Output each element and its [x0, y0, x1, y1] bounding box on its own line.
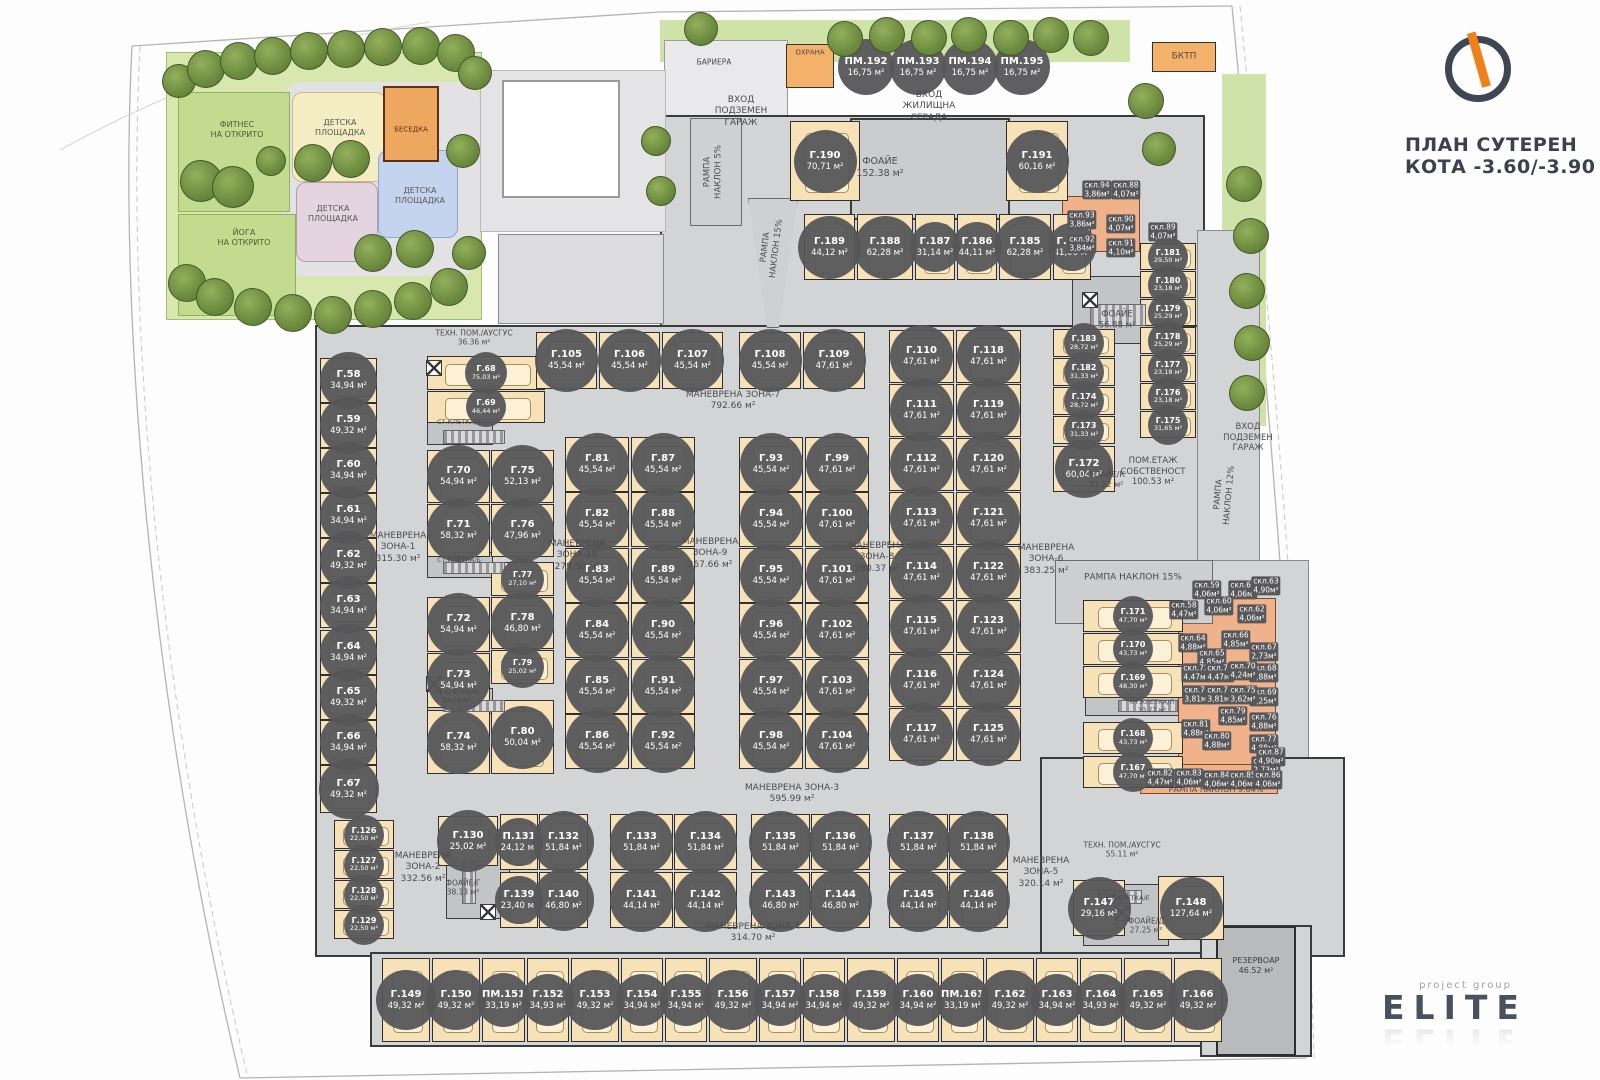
stall-badge: Г.18731,14 м²: [910, 222, 960, 272]
stall-area: 47,70 м²: [1119, 773, 1147, 781]
stall-id: Г.75: [510, 465, 534, 477]
stall-id: Г.130: [452, 830, 483, 842]
tree-icon: [827, 21, 863, 57]
stall-area: 51,84 м²: [623, 843, 660, 853]
stall-id: Г.152: [532, 989, 563, 1001]
plan-label: СТ.КЛЕТКА/Б: [437, 556, 481, 564]
tree-icon: [234, 288, 272, 326]
storage-chip: скл.87 4,90м²: [1256, 747, 1285, 766]
stall-id: Г.191: [1021, 150, 1052, 162]
stall-badge: Г.9245,54 м²: [632, 710, 695, 773]
stall-area: 29,16 м²: [1081, 909, 1118, 919]
tree-icon: [641, 126, 671, 156]
tree-icon: [458, 56, 492, 90]
stall-badge: Г.9947,61 м²: [806, 433, 869, 496]
stall-id: Г.109: [818, 349, 849, 361]
stall-area: 34,94 м²: [762, 1001, 799, 1011]
stall-id: Г.155: [670, 989, 701, 1001]
stall-id: Г.59: [336, 414, 360, 426]
stall-id: Г.157: [764, 989, 795, 1001]
stall-id: Г.150: [440, 989, 471, 1001]
stall-id: Г.188: [869, 236, 900, 248]
stall-area: 33,19 м²: [485, 1001, 522, 1011]
stall-area: 34,93 м²: [1083, 1001, 1120, 1011]
plan-label: МАНЕВРЕНА ЗОНА-6 383.25 м²: [1018, 543, 1075, 577]
stall-badge: Г.8145,54 м²: [566, 433, 629, 496]
stall-badge: Г.10447,61 м²: [806, 710, 869, 773]
stall-area: 45,54 м²: [579, 576, 616, 586]
stall-area: 29,50 м²: [1154, 257, 1182, 265]
stall-id: Г.116: [906, 669, 937, 681]
stall-id: Г.103: [821, 675, 852, 687]
stall-area: 47,96 м²: [504, 531, 541, 541]
tree-icon: [430, 268, 468, 306]
stall-area: 44,12 м²: [811, 248, 848, 258]
stall-id: Г.123: [973, 615, 1004, 627]
tree-icon: [354, 290, 392, 328]
plan-label: ТЕХН. ПОМ./АУСГУС 36.36 м²: [435, 329, 512, 348]
stall-area: 54,94 м²: [440, 477, 477, 487]
stall-area: 22,50 м²: [350, 895, 378, 903]
plan-label: СТ.КЛЕТКА/А: [437, 418, 481, 426]
stall-area: 47,61 м²: [903, 573, 940, 583]
storage-chip: скл.92 3,84м²: [1067, 234, 1096, 253]
stall-id: Г.172: [1068, 458, 1099, 470]
stall-area: 34,94 м²: [806, 1001, 843, 1011]
stall-area: 47,61 м²: [970, 627, 1007, 637]
plan-label: МАНЕВРЕНА ЗОНА-5 320.14 м²: [1013, 856, 1070, 890]
stall-badge: Г.14144,14 м²: [610, 869, 673, 932]
stall-area: 45,54 м²: [753, 465, 790, 475]
stall-id: Г.185: [1009, 236, 1040, 248]
storage-chip: скл.93 3,86м²: [1067, 210, 1096, 229]
tree-icon: [1226, 166, 1262, 202]
stall-area: 47,61 м²: [903, 627, 940, 637]
stall-badge: Г.13651,84 м²: [809, 811, 872, 874]
stall-id: Г.117: [906, 723, 937, 735]
stall-id: Г.163: [1041, 989, 1072, 1001]
tree-icon: [684, 12, 718, 46]
stall-area: 45,54 м²: [753, 631, 790, 641]
stall-id: Г.66: [336, 731, 360, 743]
plan-label: БКТП: [1172, 51, 1197, 62]
stall-badge: Г.13851,84 м²: [947, 811, 1010, 874]
plan-label: РАМПА НАКЛОН 9.64%: [1169, 785, 1264, 795]
stall-area: 34,94 м²: [330, 606, 367, 616]
tree-icon: [402, 27, 440, 65]
stall-area: 54,94 м²: [440, 625, 477, 635]
storage-chip: скл.58 4,47м²: [1169, 600, 1198, 619]
stall-area: 45,54 м²: [579, 742, 616, 752]
stall-area: 27,10 м²: [508, 580, 536, 588]
stall-badge: Г.10347,61 м²: [806, 655, 869, 718]
stall-area: 46,80 м²: [762, 901, 799, 911]
stall-area: 49,32 м²: [388, 1001, 425, 1011]
stall-id: Г.92: [651, 730, 675, 742]
stall-id: Г.80: [510, 726, 534, 738]
stall-area: 23,40 м²: [501, 901, 538, 911]
tree-icon: [396, 230, 434, 268]
stall-area: 47,61 м²: [903, 681, 940, 691]
stall-badge: Г.10645,54 м²: [598, 329, 661, 392]
compass-needle: [1467, 31, 1491, 87]
stall-id: Г.111: [906, 399, 937, 411]
stall-id: Г.86: [585, 730, 609, 742]
stall-area: 58,32 м²: [440, 531, 477, 541]
plan-label: МАНЕВРЕНА ЗОНА-8 280.37 м²: [849, 541, 906, 575]
plan-label: ВХОД ЖИЛИЩНА СГРАДА: [903, 90, 956, 124]
stall-id: Г.149: [390, 989, 421, 1001]
stall-id: Г.189: [814, 236, 845, 248]
storage-chip: скл.66 4,85м²: [1221, 630, 1250, 649]
stall-id: Г.120: [973, 453, 1004, 465]
stall-area: 46,80 м²: [545, 901, 582, 911]
stall-area: 49,32 м²: [1130, 1001, 1167, 1011]
stall-area: 45,54 м²: [645, 465, 682, 475]
storage-chip: скл.90 4,07м²: [1106, 214, 1135, 233]
stall-area: 45,54 м²: [674, 361, 711, 371]
stall-area: 34,93 м²: [530, 1001, 567, 1011]
stall-badge: Г.8445,54 м²: [566, 599, 629, 662]
tree-icon: [274, 294, 312, 332]
plan-label: ДЕТСКА ПЛОЩАДКА: [395, 186, 445, 206]
stall-area: 34,94 м²: [330, 516, 367, 526]
stall-area: 45,54 м²: [579, 465, 616, 475]
stall-id: ПМ.193: [897, 56, 940, 68]
stall-area: 44,14 м²: [960, 901, 997, 911]
stall-id: Г.136: [825, 831, 856, 843]
stall-id: Г.190: [809, 150, 840, 162]
stall-id: Г.61: [336, 504, 360, 516]
stall-area: 34,94 м²: [900, 1001, 937, 1011]
stall-area: 47,61 м²: [970, 357, 1007, 367]
stall-area: 45,54 м²: [579, 631, 616, 641]
tree-icon: [951, 17, 987, 53]
stall-area: 45,54 м²: [645, 520, 682, 530]
storage-chip: скл.70 4,24м²: [1228, 661, 1257, 680]
stall-badge: Г.16649,32 м²: [1168, 970, 1228, 1030]
plan-label: БАРИЕРА: [697, 57, 732, 66]
plan-label: ФОАЙЕ/Д 27.25 м²: [1128, 917, 1164, 936]
stall-area: 47,61 м²: [970, 735, 1007, 745]
plan-elevation: КОТА -3.60/-3.90: [1405, 156, 1600, 178]
stall-id: Г.63: [336, 594, 360, 606]
plan-label: МАНЕВРЕНА ЗОНА-7 792.66 м²: [686, 390, 780, 413]
tree-icon: [1033, 17, 1069, 53]
stall-area: 34,94 м²: [624, 1001, 661, 1011]
stall-id: Г.104: [821, 730, 852, 742]
stall-area: 49,32 м²: [1180, 1001, 1217, 1011]
stall-id: П.131: [502, 831, 535, 843]
stall-area: 45,54 м²: [548, 361, 585, 371]
tree-icon: [1229, 375, 1265, 411]
plan-label: БЕСЕДКА: [394, 126, 428, 135]
stall-id: Г.84: [585, 619, 609, 631]
stall-area: 52,13 м²: [504, 477, 541, 487]
stall-area: 23,18 м²: [1154, 369, 1182, 377]
stall-id: Г.148: [1175, 897, 1206, 909]
stall-area: 31,14 м²: [917, 248, 954, 258]
storage-chip: скл.88 4,07м²: [1111, 180, 1140, 199]
stall-badge: Г.18129,50 м²: [1148, 237, 1188, 277]
storage-chip: скл.76 4,88м²: [1249, 712, 1278, 731]
stall-id: Г.81: [585, 453, 609, 465]
stall-id: Г.95: [759, 564, 783, 576]
stall-id: Г.98: [759, 730, 783, 742]
stall-badge: Г.14046,80 м²: [533, 869, 594, 930]
storage-chip: скл.75 3,62м²: [1228, 685, 1257, 704]
stall-badge: Г.12922,50 м²: [344, 905, 384, 945]
tree-icon: [446, 134, 480, 168]
stall-area: 16,75 м²: [952, 68, 989, 78]
tree-icon: [327, 30, 365, 68]
stall-badge: Г.8645,54 м²: [566, 710, 629, 773]
stall-area: 51,84 м²: [545, 843, 582, 853]
storage-chip: скл.94 3,86м²: [1082, 180, 1111, 199]
tree-icon: [256, 146, 286, 176]
stall-id: Г.100: [821, 508, 852, 520]
stall-id: ПМ.151: [482, 989, 525, 1001]
stall-area: 31,65 м²: [1154, 425, 1182, 433]
stall-id: Г.138: [963, 831, 994, 843]
stall-id: Г.58: [336, 369, 360, 381]
stall-area: 22,50 м²: [350, 865, 378, 873]
stall-area: 47,61 м²: [903, 465, 940, 475]
stall-badge: Г.18944,12 м²: [798, 216, 861, 279]
stall-badge: Г.13751,84 м²: [887, 811, 950, 874]
tree-icon: [1073, 20, 1109, 56]
stall-area: 47,61 м²: [819, 631, 856, 641]
stall-badge: Г.10545,54 м²: [535, 329, 598, 392]
stall-badge: Г.9445,54 м²: [740, 488, 803, 551]
stall-id: Г.91: [651, 675, 675, 687]
stall-area: 45,54 м²: [753, 520, 790, 530]
stall-area: 46,80 м²: [822, 901, 859, 911]
storage-chip: скл.91 4,10м²: [1106, 238, 1135, 257]
stall-area: 47,61 м²: [819, 742, 856, 752]
stall-badge: Г.13551,84 м²: [749, 811, 812, 874]
stall-area: 47,61 м²: [970, 519, 1007, 529]
stall-area: 70,71 м²: [807, 162, 844, 172]
plan-label: ФОАЙЕ 56.88 м²: [1099, 309, 1136, 330]
stall-badge: Г.8050,04 м²: [491, 706, 554, 769]
stall-area: 16,75 м²: [1004, 68, 1041, 78]
stall-id: Г.115: [906, 615, 937, 627]
stall-id: ПМ.161: [941, 989, 984, 1001]
tree-icon: [364, 28, 402, 66]
stall-area: 51,84 м²: [762, 843, 799, 853]
stall-area: 45,54 м²: [645, 742, 682, 752]
stall-id: Г.71: [446, 519, 470, 531]
stall-id: Г.60: [336, 459, 360, 471]
stall-area: 49,32 м²: [577, 1001, 614, 1011]
plan-label: ФОАЙЕ/К 32.22 м²: [1087, 470, 1125, 490]
stall-area: 47,61 м²: [970, 411, 1007, 421]
stall-id: Г.141: [626, 889, 657, 901]
tree-icon: [1142, 132, 1176, 166]
plan-label: МАНЕВРЕНА ЗОНА-4 314.70 м²: [706, 922, 800, 945]
stall-area: 45,54 м²: [645, 631, 682, 641]
stall-badge: Г.11747,61 м²: [890, 703, 953, 766]
stall-badge: Г.18862,28 м²: [854, 216, 917, 279]
stall-id: Г.64: [336, 641, 360, 653]
stall-area: 51,84 м²: [900, 843, 937, 853]
plan-label: ЙОГА НА ОТКРИТО: [218, 228, 271, 248]
stall-area: 49,32 м²: [330, 561, 367, 571]
stall-area: 44,14 м²: [687, 901, 724, 911]
stall-badge: Г.8745,54 м²: [632, 433, 695, 496]
stall-id: Г.102: [821, 619, 852, 631]
stall-area: 44,14 м²: [900, 901, 937, 911]
stall-area: 51,84 м²: [822, 843, 859, 853]
stall-area: 25,29 м²: [1154, 341, 1182, 349]
north-compass-icon: [1445, 36, 1511, 102]
plan-label: ТЕХН. ПОМ./АУСГУС 55.11 м²: [1083, 841, 1160, 860]
stall-id: Г.74: [446, 731, 470, 743]
stall-area: 45,54 м²: [752, 361, 789, 371]
stall-badge: Г.10845,54 м²: [739, 329, 802, 392]
tree-icon: [911, 20, 947, 56]
tree-icon: [1234, 325, 1270, 361]
plan-label: РЕЗЕРВОАР 46.52 м²: [1233, 956, 1280, 976]
stall-badge: Г.10745,54 м²: [661, 329, 724, 392]
stall-id: Г.135: [765, 831, 796, 843]
stall-area: 34,94 м²: [668, 1001, 705, 1011]
reservoir: [1216, 926, 1296, 1056]
stall-id: Г.133: [626, 831, 657, 843]
stall-id: Г.110: [906, 345, 937, 357]
stall-id: Г.76: [510, 519, 534, 531]
skylight-hatch: [498, 234, 664, 324]
storage-chip: скл.63 4,90м²: [1251, 576, 1280, 595]
stall-id: Г.186: [961, 236, 992, 248]
plan-label: ПОМ.ЕТАЖ СОБСТВЕНОСТ 100.53 м²: [1121, 456, 1186, 488]
plan-label: СТ.КЛЕТКА/Е: [1106, 894, 1150, 902]
stall-area: 25,29 м²: [1154, 313, 1182, 321]
stall-area: 48,30 м²: [1119, 683, 1147, 691]
storage-chip: скл.67 2,73м²: [1249, 642, 1278, 661]
stall-area: 22,50 м²: [350, 925, 378, 933]
stall-id: Г.99: [825, 453, 849, 465]
stall-area: 23,18 м²: [1154, 397, 1182, 405]
stall-area: 47,70 м²: [1119, 617, 1147, 625]
stall-area: 45,54 м²: [645, 576, 682, 586]
stall-id: Г.89: [651, 564, 675, 576]
plan-label: МАНЕВРЕНА ЗОНА-3 595.99 м²: [745, 783, 839, 806]
storage-chip: скл.60 4,06м²: [1204, 596, 1233, 615]
stall-id: Г.112: [906, 453, 937, 465]
stall-area: 47,61 м²: [970, 465, 1007, 475]
plan-label: МАНЕВРЕНА ЗОНА-10 279.50 м²: [549, 539, 606, 573]
stall-area: 46,44 м²: [472, 408, 500, 416]
stall-id: Г.113: [906, 507, 937, 519]
stall-area: 62,28 м²: [867, 248, 904, 258]
stall-badge: Г.19070,71 м²: [794, 130, 857, 193]
site-plan-canvas: ПЛАН СУТЕРЕН КОТА -3.60/-3.90 project gr…: [0, 0, 1600, 1080]
stall-id: Г.144: [825, 889, 856, 901]
stall-area: 62,28 м²: [1007, 248, 1044, 258]
stall-id: Г.140: [548, 889, 579, 901]
stall-area: 22,50 м²: [350, 835, 378, 843]
stall-area: 34,94 м²: [1039, 1001, 1076, 1011]
stair-flight: [443, 430, 505, 444]
stall-id: Г.118: [973, 345, 1004, 357]
stall-area: 44,11 м²: [959, 248, 996, 258]
plan-label: ВХОД ПОДЗЕМЕН ГАРАЖ: [715, 95, 768, 129]
storage-chip: скл.89 4,07м²: [1148, 222, 1177, 241]
stall-area: 47,61 м²: [903, 357, 940, 367]
stall-badge: Г.9145,54 м²: [632, 655, 695, 718]
stall-area: 34,94 м²: [330, 471, 367, 481]
stall-badge: Г.16843,73 м²: [1113, 718, 1153, 758]
elevator-icon: [426, 360, 442, 376]
stall-badge: Г.9545,54 м²: [740, 544, 803, 607]
stall-area: 28,72 м²: [1070, 402, 1098, 410]
stall-id: Г.139: [503, 889, 534, 901]
storage-chip: скл.62 4,06м²: [1237, 604, 1266, 623]
stall-area: 49,32 м²: [330, 790, 367, 800]
tree-icon: [869, 17, 905, 53]
stall-id: Г.134: [690, 831, 721, 843]
stall-badge: Г.13251,84 м²: [533, 811, 594, 872]
stall-id: Г.122: [973, 561, 1004, 573]
stall-id: Г.114: [906, 561, 937, 573]
stall-badge: Г.19160,16 м²: [1006, 130, 1069, 193]
tree-icon: [290, 32, 328, 70]
stall-id: Г.93: [759, 453, 783, 465]
stall-id: Г.159: [855, 989, 886, 1001]
stall-area: 45,54 м²: [579, 520, 616, 530]
stall-area: 25,02 м²: [508, 668, 536, 676]
stall-area: 47,61 м²: [970, 573, 1007, 583]
stall-id: Г.97: [759, 675, 783, 687]
stall-badge: Г.14544,14 м²: [887, 869, 950, 932]
stall-id: Г.137: [903, 831, 934, 843]
stall-id: Г.78: [510, 612, 534, 624]
stall-id: Г.160: [902, 989, 933, 1001]
stall-badge: Г.14446,80 м²: [809, 869, 872, 932]
stall-id: Г.166: [1182, 989, 1213, 1001]
stall-badge: Г.9845,54 м²: [740, 710, 803, 773]
stall-badge: Г.7925,02 м²: [501, 646, 544, 689]
stall-area: 33,19 м²: [944, 1001, 981, 1011]
plan-label: МАНЕВРЕНА ЗОНА-9 267.66 м²: [682, 537, 739, 571]
plan-title: ПЛАН СУТЕРЕН: [1405, 134, 1600, 156]
stall-id: Г.162: [994, 989, 1025, 1001]
stall-badge: Г.6749,32 м²: [319, 759, 379, 819]
stall-area: 47,61 м²: [819, 520, 856, 530]
plan-label: СТ.КЛЕТКА/В 33.78 м²: [434, 688, 478, 704]
stall-area: 49,32 м²: [330, 698, 367, 708]
elevator-icon: [480, 904, 496, 920]
stall-area: 45,54 м²: [645, 687, 682, 697]
tree-icon: [1128, 83, 1164, 119]
stall-area: 45,54 м²: [753, 687, 790, 697]
stall-area: 75,03 м²: [472, 374, 500, 382]
logo-reflection: ELITE: [1382, 1026, 1512, 1056]
tree-icon: [332, 140, 370, 178]
stall-id: Г.90: [651, 619, 675, 631]
stall-id: Г.96: [759, 619, 783, 631]
stall-area: 34,94 м²: [330, 653, 367, 663]
stall-badge: Г.9645,54 м²: [740, 599, 803, 662]
stall-id: Г.187: [919, 236, 950, 248]
stall-area: 58,32 м²: [440, 743, 477, 753]
tree-icon: [196, 278, 234, 316]
stall-id: ПМ.195: [1001, 56, 1044, 68]
plan-label: МАНЕВРЕНА ЗОНА-1 315.30 м²: [370, 531, 427, 565]
stall-area: 60,16 м²: [1019, 162, 1056, 172]
